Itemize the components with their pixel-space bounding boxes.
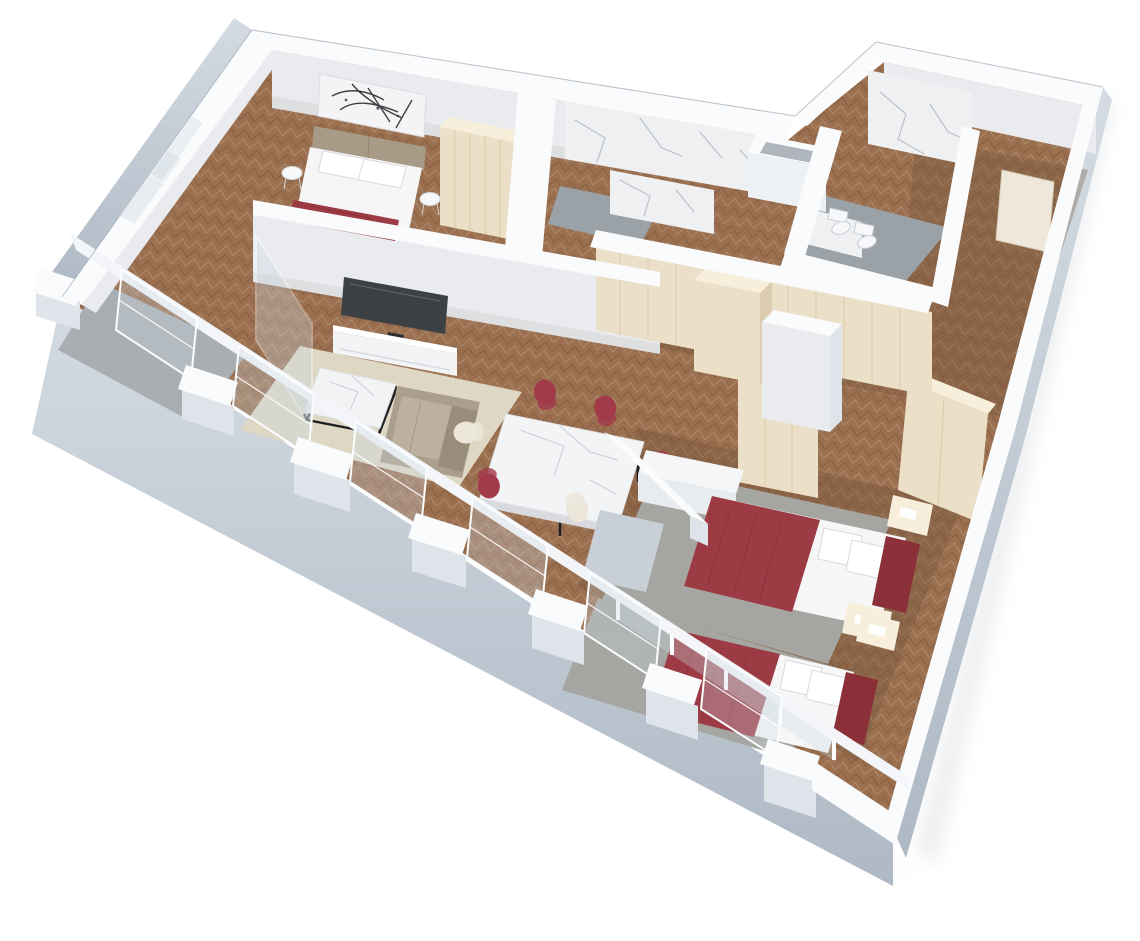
column-front — [694, 280, 760, 384]
column-side — [830, 324, 842, 432]
art-dot — [345, 99, 348, 102]
art-dot — [376, 106, 379, 109]
table-top — [282, 167, 302, 180]
white-column — [762, 310, 842, 432]
wardrobe-front — [440, 127, 518, 241]
column-front — [762, 322, 830, 432]
art-dot — [397, 115, 399, 117]
art-dot — [359, 91, 361, 93]
floorplan-render-page — [0, 0, 1140, 941]
table-top — [420, 193, 440, 206]
open-door — [996, 170, 1054, 252]
floorplan-3d-render — [0, 0, 1140, 941]
cream-column — [694, 268, 772, 384]
